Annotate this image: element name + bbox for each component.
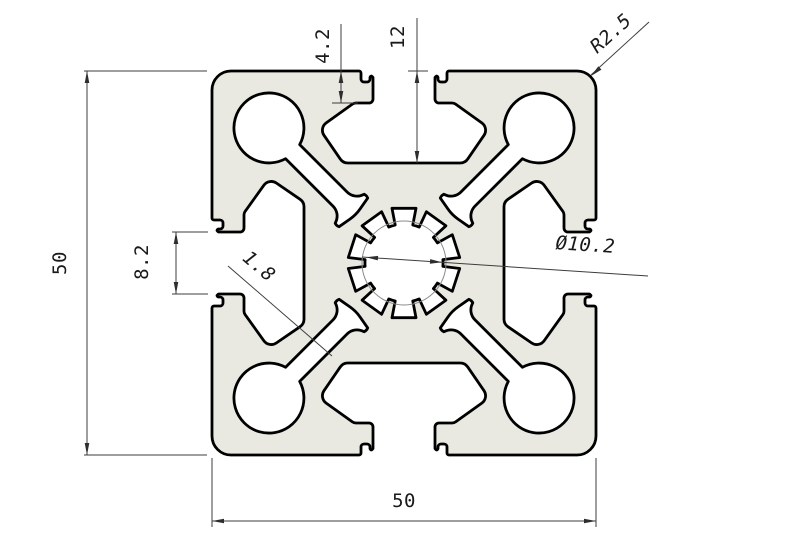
arrow <box>584 519 596 524</box>
slot-opening-8-2-label: 8.2 <box>131 244 153 280</box>
lip-depth-4-2-label: 4.2 <box>312 28 334 64</box>
arrow <box>212 519 224 524</box>
profile-drawing: 50 8.2 4.2 12 50 R2.5 Ø10.2 1.8 <box>0 0 804 557</box>
arrow <box>415 71 420 83</box>
width-50-label: 50 <box>392 490 416 512</box>
bore-diameter-label: Ø10.2 <box>555 232 616 258</box>
arrow <box>415 151 420 163</box>
arrow <box>366 255 378 260</box>
arrow <box>174 232 179 244</box>
arrow <box>85 443 90 455</box>
arrow <box>430 259 442 264</box>
slot-depth-12-label: 12 <box>387 25 409 49</box>
corner-radius-label: R2.5 <box>586 9 636 57</box>
arrow <box>85 71 90 83</box>
drawing-canvas: 50 8.2 4.2 12 50 R2.5 Ø10.2 1.8 <box>0 0 804 557</box>
arrow <box>174 282 179 294</box>
height-50-label: 50 <box>49 251 71 275</box>
